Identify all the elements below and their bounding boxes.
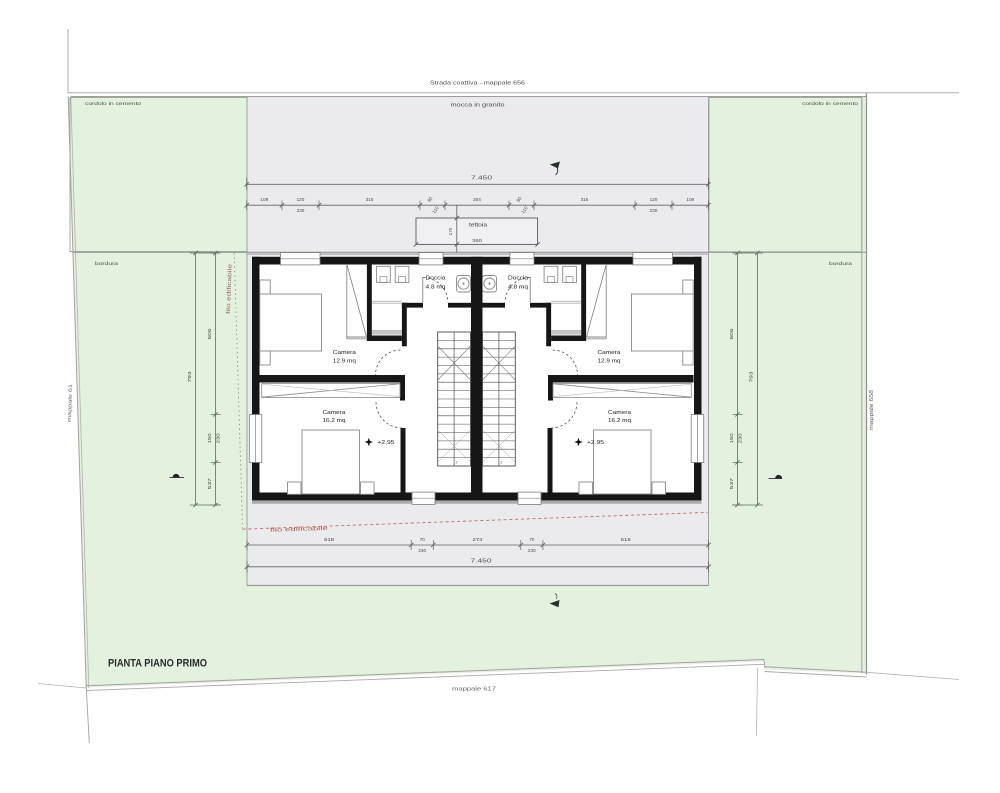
svg-text:Camera: Camera xyxy=(598,350,621,356)
svg-text:Doccia: Doccia xyxy=(426,276,446,282)
svg-text:Camera: Camera xyxy=(608,410,631,416)
svg-text:150: 150 xyxy=(729,433,734,443)
svg-text:70: 70 xyxy=(529,537,535,542)
svg-text:cordolo in cemento: cordolo in cemento xyxy=(85,101,141,107)
svg-text:518: 518 xyxy=(324,537,334,542)
svg-text:mappale 617: mappale 617 xyxy=(452,687,496,693)
svg-text:7.450: 7.450 xyxy=(471,176,492,182)
svg-text:170: 170 xyxy=(448,227,453,235)
svg-text:120: 120 xyxy=(297,197,305,202)
svg-text:793: 793 xyxy=(187,371,192,383)
svg-text:70: 70 xyxy=(420,537,426,542)
svg-text:230: 230 xyxy=(215,433,220,443)
svg-text:274: 274 xyxy=(473,537,483,542)
svg-text:Doccia: Doccia xyxy=(508,276,528,282)
svg-text:12.9 mq: 12.9 mq xyxy=(598,359,621,365)
svg-text:16.2 mq: 16.2 mq xyxy=(323,418,346,424)
svg-text:108: 108 xyxy=(260,197,268,202)
svg-text:518: 518 xyxy=(621,537,631,542)
svg-text:PIANTA PIANO PRIMO: PIANTA PIANO PRIMO xyxy=(108,658,207,670)
svg-text:4.8 mq: 4.8 mq xyxy=(426,285,446,291)
svg-text:mappale 658: mappale 658 xyxy=(869,390,875,430)
svg-text:204: 204 xyxy=(473,197,481,202)
svg-text:315: 315 xyxy=(366,197,374,202)
svg-text:Camera: Camera xyxy=(323,410,346,416)
svg-text:506: 506 xyxy=(207,328,212,340)
svg-text:+2.95: +2.95 xyxy=(587,440,604,446)
svg-text:+2.95: +2.95 xyxy=(378,440,395,446)
svg-text:506: 506 xyxy=(729,328,734,340)
svg-text:2: 2 xyxy=(456,461,458,465)
svg-text:mocca in granito: mocca in granito xyxy=(451,103,505,109)
svg-text:230: 230 xyxy=(528,548,536,553)
svg-text:108: 108 xyxy=(686,197,694,202)
svg-text:12.9 mq: 12.9 mq xyxy=(333,359,356,365)
svg-text:360: 360 xyxy=(472,238,482,243)
svg-text:150: 150 xyxy=(207,433,212,443)
svg-text:2: 2 xyxy=(500,461,502,465)
svg-text:4.8 mq: 4.8 mq xyxy=(508,285,528,291)
svg-text:7.450: 7.450 xyxy=(471,558,492,564)
svg-text:bordura: bordura xyxy=(829,261,852,267)
svg-text:tettoia: tettoia xyxy=(469,223,487,229)
svg-text:230: 230 xyxy=(297,208,305,213)
svg-text:120: 120 xyxy=(650,197,658,202)
svg-text:bordura: bordura xyxy=(95,261,118,267)
svg-text:cordolo in cemento: cordolo in cemento xyxy=(802,101,858,107)
svg-text:Strada coattiva - mappale 656: Strada coattiva - mappale 656 xyxy=(430,81,525,87)
svg-text:537: 537 xyxy=(207,478,212,490)
svg-text:230: 230 xyxy=(650,208,658,213)
svg-text:230: 230 xyxy=(738,433,743,443)
svg-text:537: 537 xyxy=(729,478,734,490)
svg-text:315: 315 xyxy=(581,197,589,202)
svg-text:Camera: Camera xyxy=(333,350,356,356)
svg-text:16.2 mq: 16.2 mq xyxy=(608,418,631,424)
svg-text:793: 793 xyxy=(749,371,754,383)
svg-text:230: 230 xyxy=(418,548,426,553)
